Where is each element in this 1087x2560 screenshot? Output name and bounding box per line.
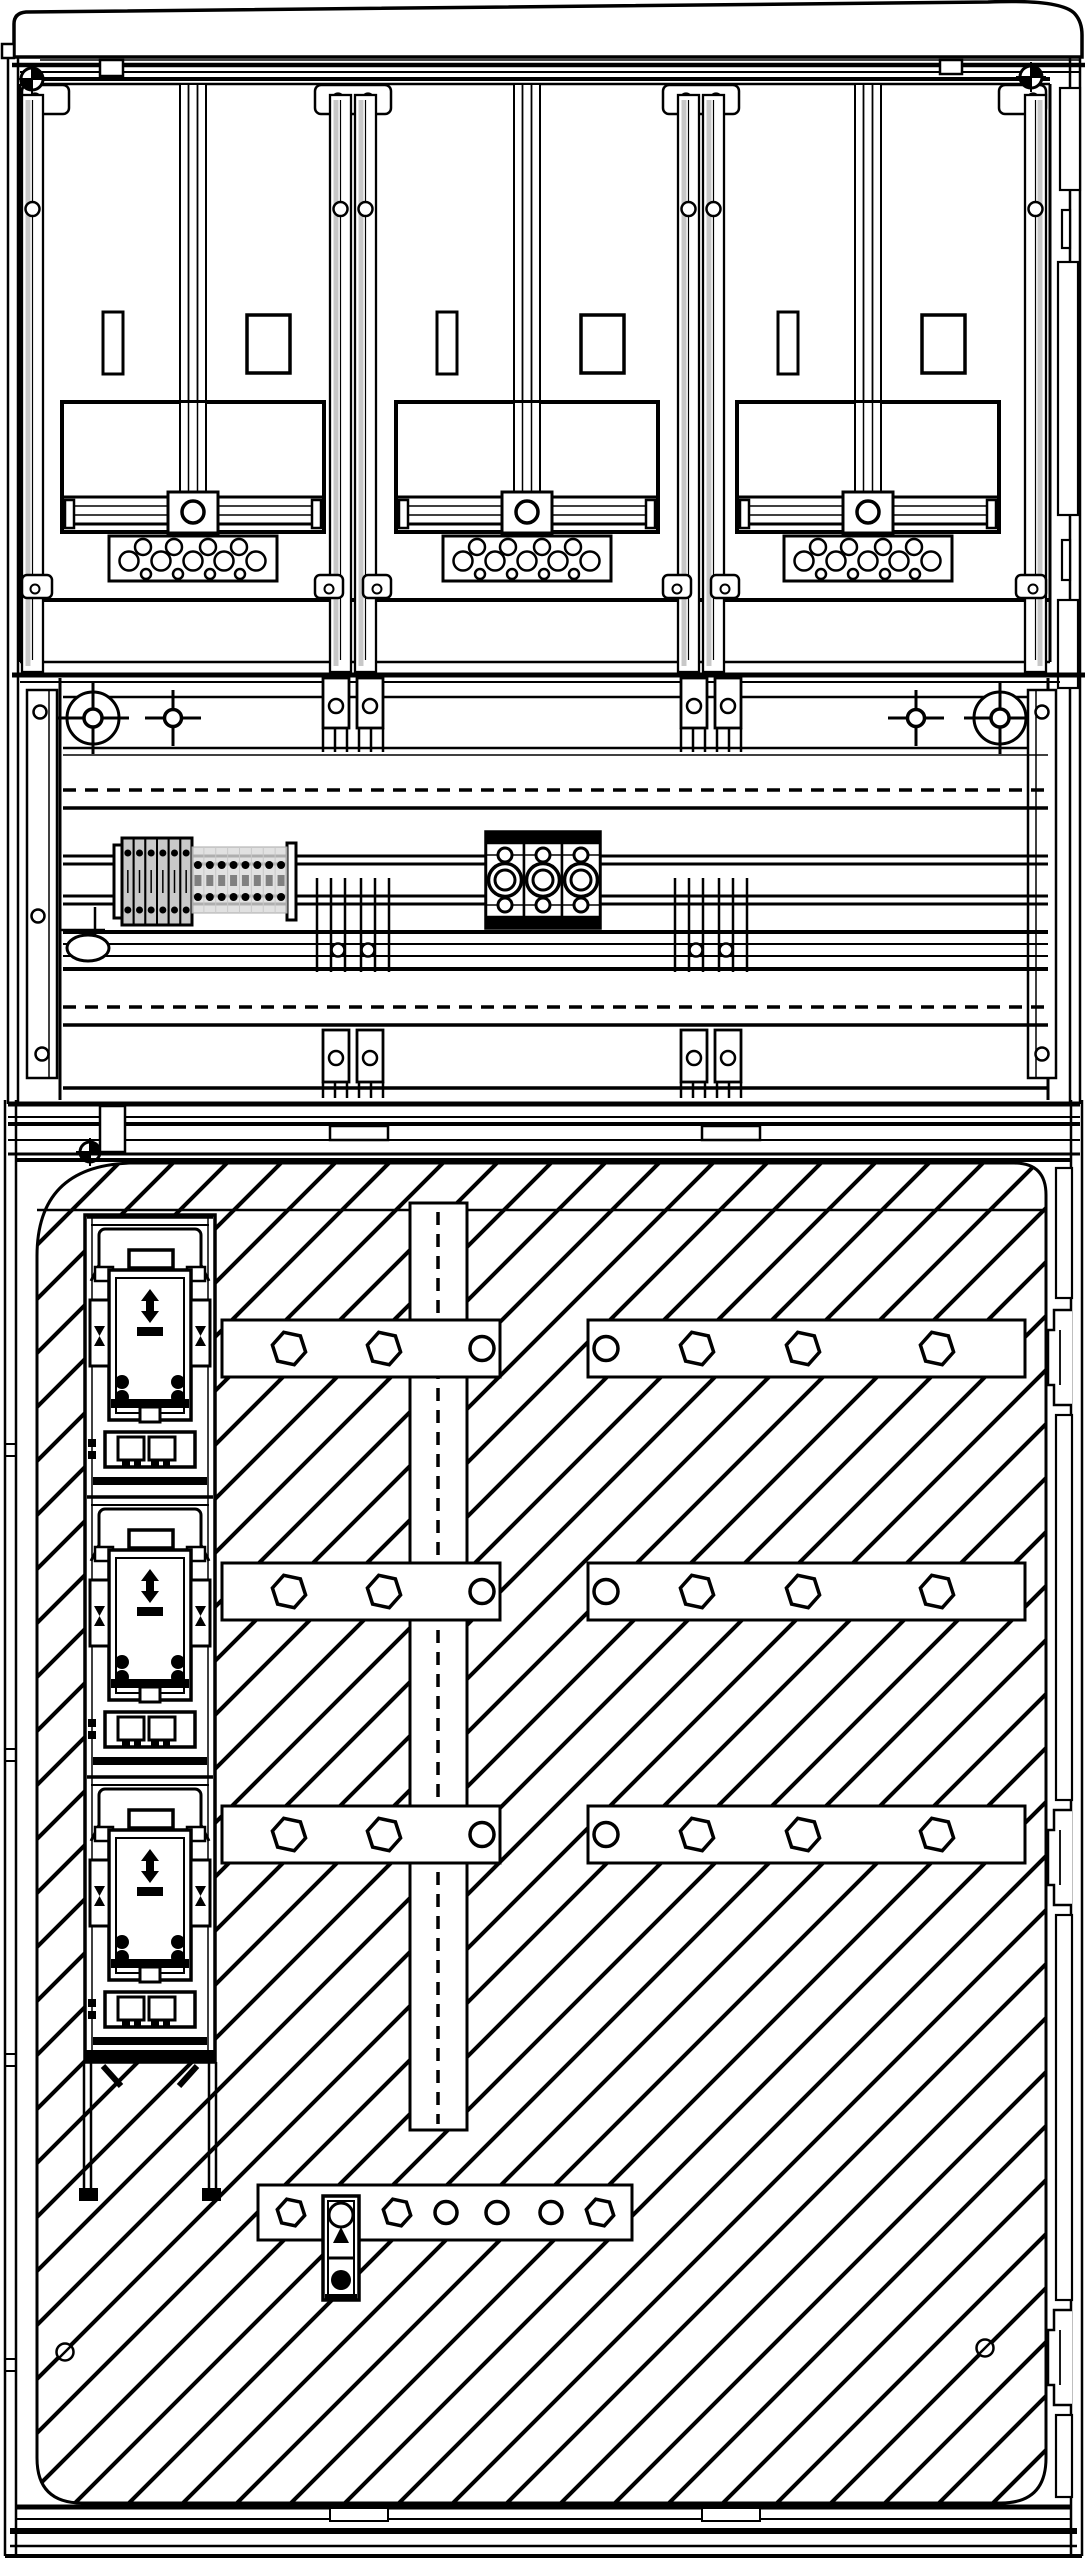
meter-bay — [396, 84, 658, 581]
door-hinges — [1048, 1168, 1072, 2497]
hex-bolt — [786, 1818, 819, 1850]
hex-bolt — [920, 1818, 953, 1850]
bolt-hole — [594, 1823, 618, 1847]
bolt-hole — [470, 1580, 494, 1604]
hex-bolt — [920, 1575, 953, 1607]
nh-fuse-switch-column — [79, 1215, 221, 2201]
meter-fixing-screw — [182, 501, 204, 523]
hex-bolt — [277, 2199, 304, 2226]
rail-screw — [1029, 202, 1043, 216]
lower-cabinet — [0, 1100, 1087, 2556]
narrow-cutout — [778, 312, 798, 374]
meter-terminal-block — [109, 536, 277, 581]
mounting-rail — [999, 85, 1046, 672]
hex-bolt — [383, 2199, 410, 2226]
hex-bolt — [272, 1575, 305, 1607]
meter-bay — [737, 84, 999, 581]
square-cutout — [247, 315, 290, 373]
bolt-hole — [470, 1337, 494, 1361]
bolt-hole — [486, 2202, 508, 2224]
bolt-hole — [435, 2202, 457, 2224]
meter-fixing-screw — [516, 501, 538, 523]
hex-bolt — [920, 1332, 953, 1364]
rail-screw — [682, 202, 696, 216]
upper-cabinet — [2, 2, 1085, 1167]
busbar-terminal-block — [486, 832, 600, 928]
bolt-bar — [588, 1320, 1025, 1377]
hex-bolt — [367, 1575, 400, 1607]
bolt-bar — [222, 1320, 500, 1377]
left-bracket — [27, 690, 57, 1078]
rail-screw — [707, 202, 721, 216]
meter-cabinet-drawing — [0, 0, 1087, 2560]
bolt-bar — [258, 2185, 632, 2240]
bolt-hole — [540, 2202, 562, 2224]
square-cutout — [581, 315, 624, 373]
right-bracket — [1028, 690, 1056, 1078]
hex-bolt — [680, 1818, 713, 1850]
hex-bolt — [367, 1818, 400, 1850]
hinge-cutout — [1048, 1310, 1072, 1405]
mounting-rail — [663, 85, 739, 672]
narrow-cutout — [437, 312, 457, 374]
hex-bolt — [272, 1332, 305, 1364]
narrow-cutout — [103, 312, 123, 374]
mounting-rail — [315, 85, 391, 672]
roof-band — [12, 60, 1085, 79]
hex-bolt — [680, 1575, 713, 1607]
hex-bolt — [786, 1575, 819, 1607]
hex-bolt — [272, 1818, 305, 1850]
bolt-bar — [588, 1806, 1025, 1863]
hex-bolt — [786, 1332, 819, 1364]
rail-screw — [26, 202, 40, 216]
bolt-bar — [222, 1806, 500, 1863]
cabinet-joint-band — [8, 1104, 1080, 1154]
bolt-hole — [594, 1337, 618, 1361]
drill-marks — [57, 682, 1036, 754]
meter-fixing-screw — [857, 501, 879, 523]
hinge-cutout — [1048, 1810, 1072, 1905]
bolt-bar — [222, 1563, 500, 1620]
cabinet-base — [5, 2507, 1082, 2556]
roof-cap — [2, 2, 1082, 59]
left-frame-notches — [5, 1444, 16, 2371]
hex-bolt — [680, 1332, 713, 1364]
technical-drawing — [0, 0, 1087, 2560]
bolt-hole — [594, 1580, 618, 1604]
support-column — [675, 678, 747, 1098]
hinge-cutout — [1048, 2310, 1072, 2405]
rail-screw — [359, 202, 373, 216]
square-cutout — [922, 315, 965, 373]
phantom-terminal-block — [192, 847, 287, 913]
bolt-hole — [470, 1823, 494, 1847]
hex-bolt — [586, 2199, 613, 2226]
busbar-compartment — [12, 675, 1085, 1100]
rail-screw — [334, 202, 348, 216]
bolt-bar — [588, 1563, 1025, 1620]
meter-terminal-block — [443, 536, 611, 581]
meter-bays — [62, 84, 999, 581]
hex-bolt — [367, 1332, 400, 1364]
bottom-connector-device — [323, 2196, 359, 2301]
support-column — [317, 678, 389, 1098]
mounting-rail — [22, 85, 69, 672]
meter-terminal-block — [784, 536, 952, 581]
meter-bay — [62, 84, 324, 581]
